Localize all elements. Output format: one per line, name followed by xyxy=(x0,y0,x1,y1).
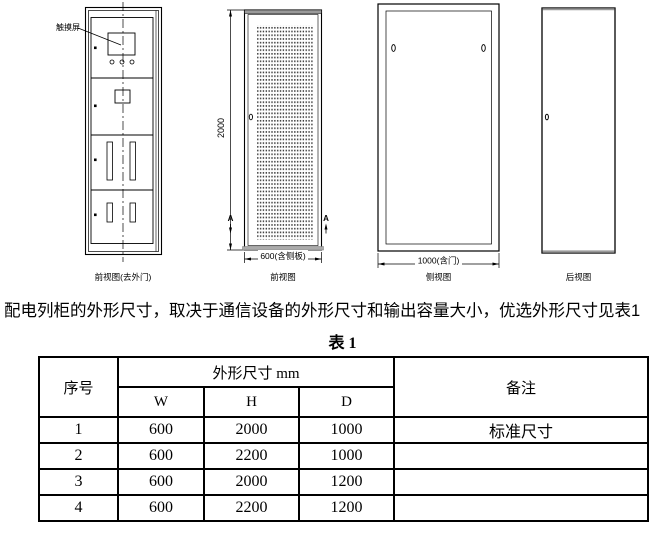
front-no-door-caption: 前视图(去外门) xyxy=(95,272,152,282)
cell-d: 1000 xyxy=(299,443,394,469)
breaker-slot xyxy=(107,203,113,222)
dim-depth-label: 1000(含门) xyxy=(418,256,460,266)
indicator-light xyxy=(130,60,134,64)
col-header-d: D xyxy=(299,387,394,417)
arrowhead-down-icon xyxy=(229,244,232,251)
arrowhead-left-icon xyxy=(378,263,385,266)
leader-line xyxy=(78,28,121,45)
document-page: 触摸屏 前视图(去外门) 2000 A A xyxy=(0,0,661,538)
cell-w: 600 xyxy=(118,495,204,521)
cell-no: 3 xyxy=(39,469,118,495)
door-handle xyxy=(249,114,252,120)
breaker-slot xyxy=(107,142,113,180)
arrowhead-right-icon xyxy=(315,258,322,261)
perforated-panel xyxy=(257,25,313,240)
cell-no: 4 xyxy=(39,495,118,521)
cell-no: 2 xyxy=(39,443,118,469)
front-view-caption: 前视图 xyxy=(270,272,296,282)
cell-remark xyxy=(394,495,648,521)
cell-remark xyxy=(394,443,648,469)
dim-width-label: 600(含侧板) xyxy=(260,251,306,261)
cell-h: 2200 xyxy=(204,443,299,469)
section-marker-a-left: A xyxy=(228,214,234,223)
cell-d: 1000 xyxy=(299,417,394,443)
cell-h: 2000 xyxy=(204,469,299,495)
cell-d: 1200 xyxy=(299,495,394,521)
indicator-light xyxy=(120,60,124,64)
door-handle xyxy=(545,114,548,120)
indicator-light xyxy=(110,60,114,64)
cell-h: 2000 xyxy=(204,417,299,443)
side-view: 1000(含门) 侧视图 xyxy=(378,4,499,282)
cell-w: 600 xyxy=(118,443,204,469)
touchscreen xyxy=(108,33,135,55)
arrowhead-up-icon xyxy=(229,10,232,17)
hinge xyxy=(392,45,396,52)
cell-w: 600 xyxy=(118,469,204,495)
cabinet-drawings: 触摸屏 前视图(去外门) 2000 A A xyxy=(0,0,661,295)
col-header-w: W xyxy=(118,387,204,417)
cell-d: 1200 xyxy=(299,469,394,495)
touchscreen-label: 触摸屏 xyxy=(56,22,80,32)
table-title: 表 1 xyxy=(38,329,647,353)
cell-no: 1 xyxy=(39,417,118,443)
hinge-dot xyxy=(94,214,97,217)
cell-w: 600 xyxy=(118,417,204,443)
body-paragraph: 配电列柜的外形尺寸，取决于通信设备的外形尺寸和输出容量大小，优选外形尺寸见表1 xyxy=(4,297,660,321)
arrowhead-left-icon xyxy=(245,258,252,261)
side-view-caption: 侧视图 xyxy=(426,272,452,282)
col-header-index: 序号 xyxy=(39,357,118,417)
arrowhead-right-icon xyxy=(493,263,500,266)
section-marker-a-right: A xyxy=(323,214,329,223)
rear-view-caption: 后视图 xyxy=(566,272,592,282)
hinge xyxy=(482,45,486,52)
table-row: 4 600 2200 1200 xyxy=(39,495,648,521)
table-row: 3 600 2000 1200 xyxy=(39,469,648,495)
dimensions-table: 序号 外形尺寸 mm 备注 W H D 1 600 2000 1000 标准尺寸… xyxy=(38,356,649,522)
top-cap xyxy=(245,10,322,14)
table-row: 2 600 2200 1000 xyxy=(39,443,648,469)
cell-remark: 标准尺寸 xyxy=(394,417,648,443)
col-header-h: H xyxy=(204,387,299,417)
meter-window xyxy=(115,90,130,103)
col-header-dims-group: 外形尺寸 mm xyxy=(118,357,394,387)
col-header-remark: 备注 xyxy=(394,357,648,417)
breaker-slot xyxy=(130,142,136,180)
cell-remark xyxy=(394,469,648,495)
rear-view: 后视图 xyxy=(542,8,615,282)
table-header-row-1: 序号 外形尺寸 mm 备注 xyxy=(39,357,648,387)
section-arrow-down-icon xyxy=(229,228,232,234)
base-cap xyxy=(243,247,324,251)
hinge-dot xyxy=(94,159,97,162)
breaker-slot xyxy=(130,203,136,222)
cell-h: 2200 xyxy=(204,495,299,521)
hinge-dot xyxy=(94,47,97,50)
front-view: 2000 A A 600(含侧板) 前视图 xyxy=(216,10,329,282)
table-row: 1 600 2000 1000 标准尺寸 xyxy=(39,417,648,443)
front-view-no-door: 触摸屏 前视图(去外门) xyxy=(56,2,162,282)
dim-height-label: 2000 xyxy=(216,118,226,138)
section-arrow-up-icon xyxy=(325,224,328,230)
hinge-dot xyxy=(94,105,97,108)
